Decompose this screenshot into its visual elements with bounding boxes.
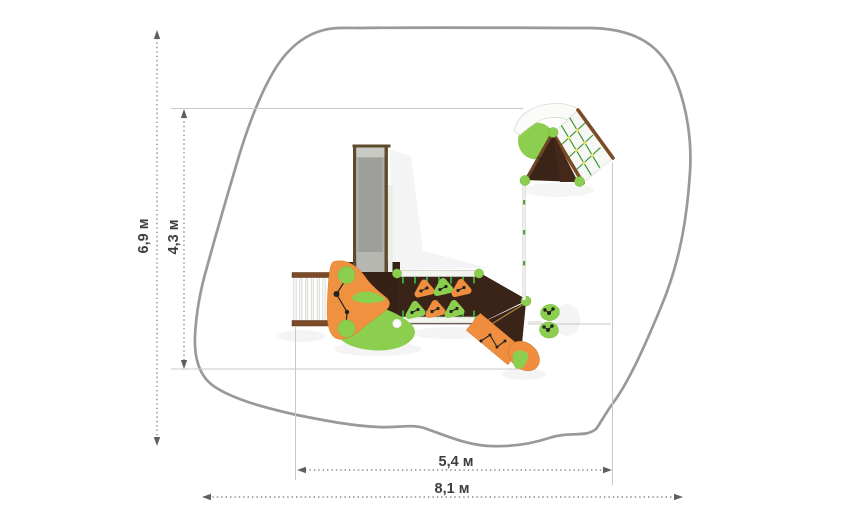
straight-slide bbox=[353, 145, 393, 273]
ladder-rail-bottom bbox=[292, 321, 333, 327]
upper-tower bbox=[514, 103, 613, 186]
link-pole bbox=[523, 183, 526, 300]
wall-handle-top bbox=[338, 266, 355, 283]
playground-plan-svg: 6,9 м 4,3 м 5,4 м 8,1 м bbox=[0, 0, 850, 530]
dim-label-equipment-width: 5,4 м bbox=[439, 454, 474, 470]
dim-label-overall-width: 8,1 м bbox=[435, 481, 470, 497]
dim-label-overall-height: 6,9 м bbox=[136, 219, 152, 254]
slide-top-cap bbox=[353, 145, 391, 148]
safety-zone-boundary bbox=[195, 28, 691, 447]
plan-canvas: 6,9 м 4,3 м 5,4 м 8,1 м bbox=[0, 0, 850, 530]
wall-handle-bottom bbox=[338, 320, 355, 337]
slide-rail-right bbox=[385, 146, 388, 272]
equipment-shadows bbox=[278, 150, 594, 380]
slide-rail-left bbox=[353, 146, 356, 272]
dim-label-equipment-height: 4,3 м bbox=[166, 220, 182, 255]
ladder-rail-top bbox=[292, 273, 333, 278]
panel-hole bbox=[393, 319, 402, 328]
rung-ladder bbox=[292, 273, 333, 327]
